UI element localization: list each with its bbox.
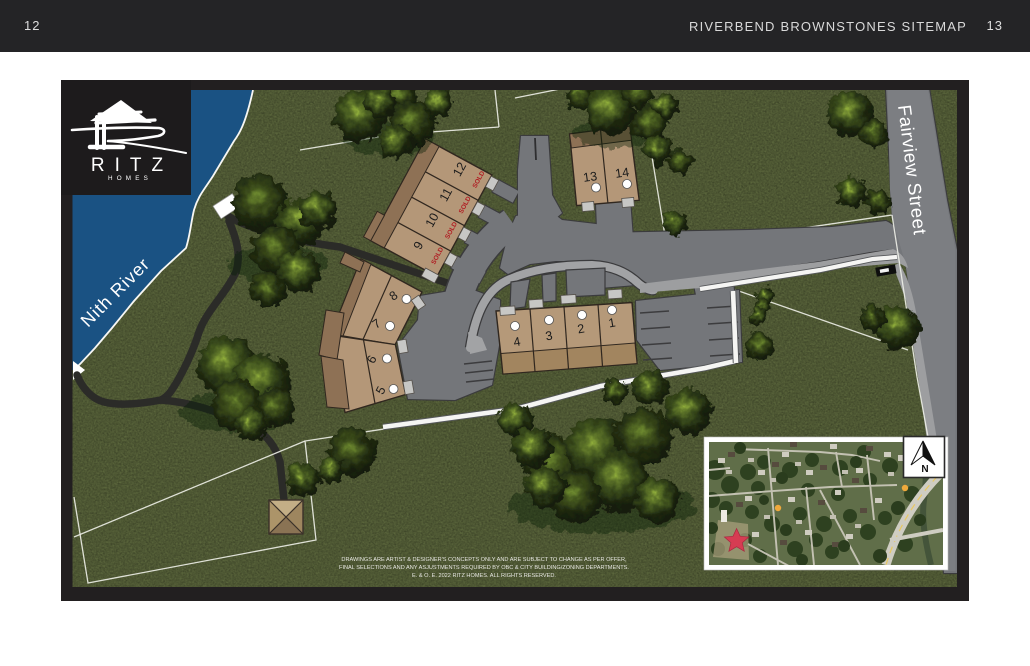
svg-text:14: 14 [614, 165, 630, 181]
svg-text:RITZ: RITZ [91, 155, 173, 176]
svg-text:FINAL SELECTIONS AND ANY ASJUS: FINAL SELECTIONS AND ANY ASJUSTMENTS REQ… [339, 565, 629, 571]
svg-text:DRAWINGS ARE ARTIST & DESIGNER: DRAWINGS ARE ARTIST & DESIGNER'S CONCEPT… [341, 557, 627, 563]
svg-text:13: 13 [582, 169, 598, 185]
svg-text:E. & O. E. 2022 RITZ HOMES. AL: E. & O. E. 2022 RITZ HOMES. ALL RIGHTS R… [412, 573, 556, 579]
svg-text:N: N [921, 464, 928, 475]
svg-text:HOMES: HOMES [108, 175, 152, 182]
